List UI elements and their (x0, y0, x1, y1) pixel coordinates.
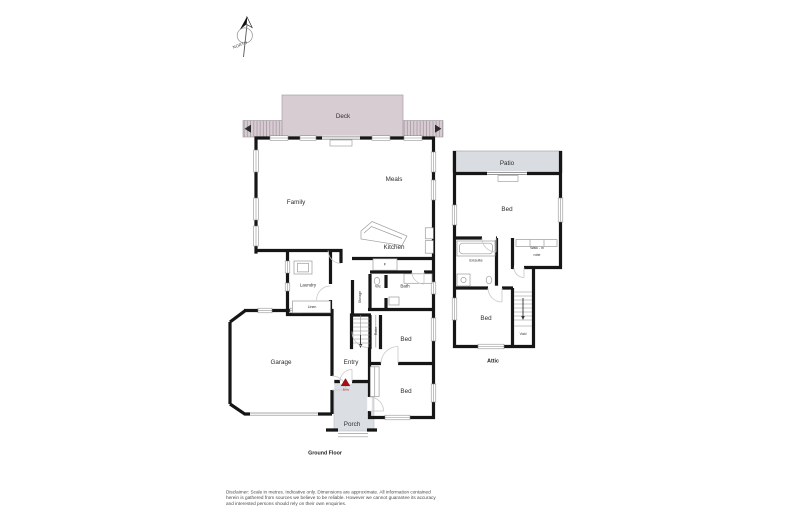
room-label-family: Family (287, 199, 306, 206)
attic-windows (452, 198, 563, 349)
label-robe: Robe (374, 327, 378, 335)
north-compass-icon (237, 17, 252, 57)
room-label-attic-bed-second: Bed (480, 314, 491, 321)
room-label-garage: Garage (270, 358, 291, 365)
deck-sliding-door (322, 136, 360, 146)
floorplan-page: NORTH Deck Family Meals Kitchen F Laundr… (0, 0, 790, 527)
label-walk-in-robe-line1: Walk - in (530, 246, 543, 250)
floorplan-graphic (0, 0, 790, 527)
attic-title: Attic (487, 358, 499, 364)
attic-plan (452, 151, 563, 349)
room-label-bath: Bath (400, 284, 409, 289)
patio-sliding-door (487, 171, 527, 181)
room-label-attic-bed-main: Bed (501, 206, 512, 213)
label-linen: Linen (307, 305, 316, 309)
label-void: Void (520, 332, 527, 336)
stairs-attic (514, 292, 532, 326)
entry-marker-label: Entry (342, 388, 348, 391)
room-label-kitchen: Kitchen (383, 244, 404, 251)
room-label-wc: Wc (375, 284, 381, 289)
disclaimer-text: Disclaimer: Scale in metres. Indicative … (226, 489, 436, 506)
label-fridge: F (384, 262, 386, 267)
stairs-ground (353, 315, 370, 348)
label-storage: Storage (358, 291, 362, 303)
room-label-ensuite: Ensuite (469, 258, 482, 263)
room-label-deck: Deck (336, 113, 350, 120)
disclaimer-line-2: herein is gathered from sources we belie… (226, 495, 436, 501)
room-label-patio: Patio (500, 160, 514, 167)
room-label-entry: Entry (344, 359, 359, 366)
room-label-meals: Meals (386, 176, 403, 183)
ground-floor-title: Ground Floor (308, 450, 342, 456)
garage-door (250, 412, 318, 417)
ground-floor-plan (230, 95, 443, 437)
room-label-laundry: Laundry (300, 283, 316, 288)
label-walk-in-robe-line2: robe (533, 253, 540, 257)
room-label-porch: Porch (344, 421, 360, 428)
disclaimer-line-3: and interested persons should rely on th… (226, 500, 436, 506)
room-label-bed-middle: Bed (400, 336, 411, 343)
room-label-bed-front: Bed (400, 387, 411, 394)
